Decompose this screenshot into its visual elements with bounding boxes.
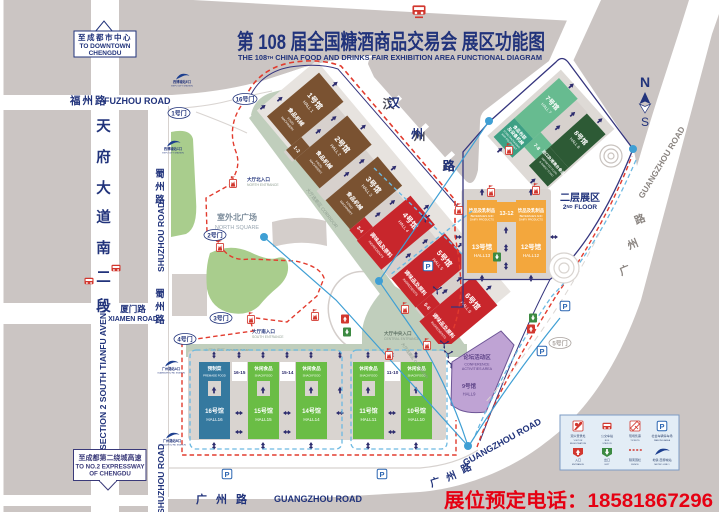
- svg-text:SNACKFOOD: SNACKFOOD: [255, 374, 273, 378]
- svg-text:路: 路: [443, 158, 456, 173]
- svg-text:1号门: 1号门: [171, 110, 186, 118]
- svg-text:4号门: 4号门: [177, 336, 192, 344]
- svg-text:13-12: 13-12: [499, 211, 513, 217]
- svg-text:BEVERAGES AND: BEVERAGES AND: [520, 214, 543, 218]
- svg-text:PARKING AREA: PARKING AREA: [654, 439, 671, 442]
- svg-text:STATION: STATION: [602, 442, 612, 445]
- svg-text:天: 天: [96, 118, 111, 135]
- svg-text:SOUTH ENTRANCE: SOUTH ENTRANCE: [252, 335, 284, 339]
- svg-text:西博城站C口: 西博城站C口: [164, 146, 182, 151]
- svg-text:ENTRANCE: ENTRANCE: [572, 463, 585, 466]
- svg-text:HALL9: HALL9: [463, 392, 476, 397]
- svg-text:至成都市中心: 至成都市中心: [78, 32, 132, 42]
- svg-text:CENTRAL ENTRANCE: CENTRAL ENTRANCE: [384, 337, 420, 341]
- svg-text:道: 道: [96, 208, 111, 226]
- svg-text:S: S: [641, 115, 649, 129]
- svg-text:HALL14: HALL14: [303, 417, 320, 422]
- svg-text:室外北广场: 室外北广场: [217, 212, 257, 222]
- svg-text:饮品及乳制品: 饮品及乳制品: [517, 207, 545, 214]
- svg-text:2号门: 2号门: [207, 232, 222, 240]
- svg-text:蜀: 蜀: [155, 169, 165, 180]
- svg-text:13号馆: 13号馆: [472, 242, 493, 251]
- svg-text:SECTION 2 SOUTH TIANFU AVENUE: SECTION 2 SOUTH TIANFU AVENUE: [98, 301, 108, 450]
- svg-text:TICKETS: TICKETS: [630, 440, 640, 442]
- svg-text:FUZHOU ROAD: FUZHOU ROAD: [104, 96, 171, 106]
- svg-text:南: 南: [96, 239, 111, 257]
- svg-text:论坛活动区: 论坛活动区: [463, 353, 491, 361]
- svg-text:DAIRY PRODUCTS: DAIRY PRODUCTS: [519, 218, 543, 222]
- svg-text:州: 州: [154, 302, 165, 313]
- svg-text:入口: 入口: [575, 458, 581, 462]
- svg-text:BUS: BUS: [605, 440, 610, 442]
- svg-text:SHUZHOU ROAD: SHUZHOU ROAD: [156, 444, 166, 512]
- svg-text:大厅中央入口: 大厅中央入口: [384, 330, 412, 337]
- svg-text:西博城站E口: 西博城站E口: [173, 79, 191, 84]
- svg-text:出口: 出口: [604, 457, 610, 462]
- svg-text:XIAMEN ROAD: XIAMEN ROAD: [108, 316, 158, 323]
- svg-text:EXIT: EXIT: [605, 464, 611, 466]
- svg-text:广州路站B口: 广州路站B口: [163, 438, 181, 443]
- svg-text:REGISTRATION: REGISTRATION: [570, 442, 587, 445]
- svg-text:11-10: 11-10: [387, 370, 399, 375]
- svg-text:16号门: 16号门: [236, 96, 255, 104]
- svg-text:15-14: 15-14: [282, 370, 294, 375]
- svg-text:展位预定电话：18581867296: 展位预定电话：18581867296: [444, 489, 713, 512]
- svg-text:大厅北入口: 大厅北入口: [247, 176, 270, 183]
- svg-text:EXPO CITY STATION: EXPO CITY STATION: [171, 85, 193, 88]
- svg-text:HALL10: HALL10: [408, 417, 425, 422]
- svg-text:休闲食品: 休闲食品: [301, 365, 321, 372]
- svg-text:VISITOR: VISITOR: [574, 440, 583, 442]
- svg-text:CHENGDU: CHENGDU: [89, 50, 122, 57]
- svg-text:16号馆: 16号馆: [205, 407, 224, 415]
- svg-text:广州路站A口: 广州路站A口: [162, 366, 180, 371]
- svg-text:HALL16: HALL16: [206, 417, 223, 422]
- svg-text:10号馆: 10号馆: [407, 407, 426, 415]
- svg-text:HALL12: HALL12: [523, 253, 540, 258]
- svg-text:福州路: 福州路: [69, 94, 108, 107]
- svg-text:第 108 届全国糖酒商品交易会 展区功能图: 第 108 届全国糖酒商品交易会 展区功能图: [237, 30, 545, 54]
- svg-text:社会车辆停车场: 社会车辆停车场: [651, 433, 672, 438]
- svg-text:FENCE: FENCE: [631, 464, 639, 466]
- svg-text:州: 州: [410, 127, 423, 141]
- svg-text:3号门: 3号门: [213, 315, 228, 323]
- svg-text:NORTH SQUARE: NORTH SQUARE: [215, 225, 260, 231]
- svg-text:地铁·西博城站: 地铁·西博城站: [653, 457, 672, 462]
- svg-text:GUANGZHOU RD STATION: GUANGZHOU RD STATION: [157, 372, 185, 375]
- svg-text:11号馆: 11号馆: [359, 407, 377, 415]
- svg-text:12号馆: 12号馆: [521, 242, 542, 251]
- svg-text:休闲食品: 休闲食品: [253, 365, 273, 372]
- svg-text:汉: 汉: [388, 95, 401, 110]
- svg-text:SNACKFOOD: SNACKFOOD: [360, 374, 378, 378]
- svg-text:ACTIVITIES AREA: ACTIVITIES AREA: [462, 367, 493, 371]
- svg-text:TO DOWNTOWN: TO DOWNTOWN: [79, 43, 130, 50]
- svg-text:PREMADE FOOD: PREMADE FOOD: [203, 374, 226, 378]
- svg-text:预制菜: 预制菜: [208, 365, 222, 372]
- svg-text:METRO LINE 1: METRO LINE 1: [654, 464, 670, 466]
- svg-text:蜀: 蜀: [155, 289, 165, 300]
- svg-text:N: N: [640, 74, 650, 90]
- svg-text:饮品及乳制品: 饮品及乳制品: [468, 207, 496, 214]
- svg-text:EXPO CITY STATION: EXPO CITY STATION: [162, 152, 184, 155]
- svg-text:DAIRY PRODUCTS: DAIRY PRODUCTS: [470, 218, 494, 222]
- svg-text:大: 大: [96, 179, 111, 197]
- svg-text:5号门: 5号门: [552, 340, 567, 348]
- svg-text:厦门路: 厦门路: [120, 304, 146, 314]
- svg-text:15号馆: 15号馆: [254, 407, 273, 415]
- svg-text:GUANGZHOU RD STATION: GUANGZHOU RD STATION: [158, 444, 186, 447]
- svg-text:广州路: 广州路: [196, 492, 256, 506]
- svg-text:BEVERAGES AND: BEVERAGES AND: [471, 214, 494, 218]
- svg-text:THE 108TH CHINA FOOD AND DRINK: THE 108TH CHINA FOOD AND DRINKS FAIR EXH…: [238, 53, 542, 62]
- svg-text:隔离围栏: 隔离围栏: [629, 457, 641, 462]
- svg-text:OF CHENGDU: OF CHENGDU: [89, 471, 131, 478]
- svg-text:观众登录处: 观众登录处: [570, 433, 585, 438]
- svg-text:SNACKFOOD: SNACKFOOD: [303, 374, 321, 378]
- svg-text:HALL15: HALL15: [255, 417, 272, 422]
- svg-text:HALL11: HALL11: [361, 417, 377, 422]
- svg-text:CONFERENCE: CONFERENCE: [464, 363, 490, 367]
- svg-text:二: 二: [96, 270, 111, 286]
- svg-text:休闲食品: 休闲食品: [358, 365, 378, 372]
- svg-text:二层展区: 二层展区: [560, 192, 600, 204]
- svg-text:GUANGZHOU ROAD: GUANGZHOU ROAD: [274, 494, 362, 504]
- svg-text:大厅南入口: 大厅南入口: [252, 328, 275, 335]
- svg-text:NORTH ENTRANCE: NORTH ENTRANCE: [247, 183, 279, 187]
- svg-text:14号馆: 14号馆: [302, 407, 321, 415]
- svg-text:府: 府: [96, 148, 111, 166]
- svg-text:州: 州: [154, 182, 165, 193]
- svg-text:16-15: 16-15: [234, 370, 246, 375]
- svg-text:TO NO.2 EXPRESSWAY: TO NO.2 EXPRESSWAY: [75, 464, 145, 471]
- svg-text:HALL13: HALL13: [474, 253, 491, 258]
- svg-text:公交车站: 公交车站: [601, 433, 613, 438]
- svg-text:现场售票: 现场售票: [629, 433, 641, 438]
- svg-text:至成都第二绕城高速: 至成都第二绕城高速: [79, 453, 142, 462]
- svg-text:SHUZHOU ROAD: SHUZHOU ROAD: [156, 202, 166, 272]
- svg-text:9号馆: 9号馆: [462, 382, 477, 390]
